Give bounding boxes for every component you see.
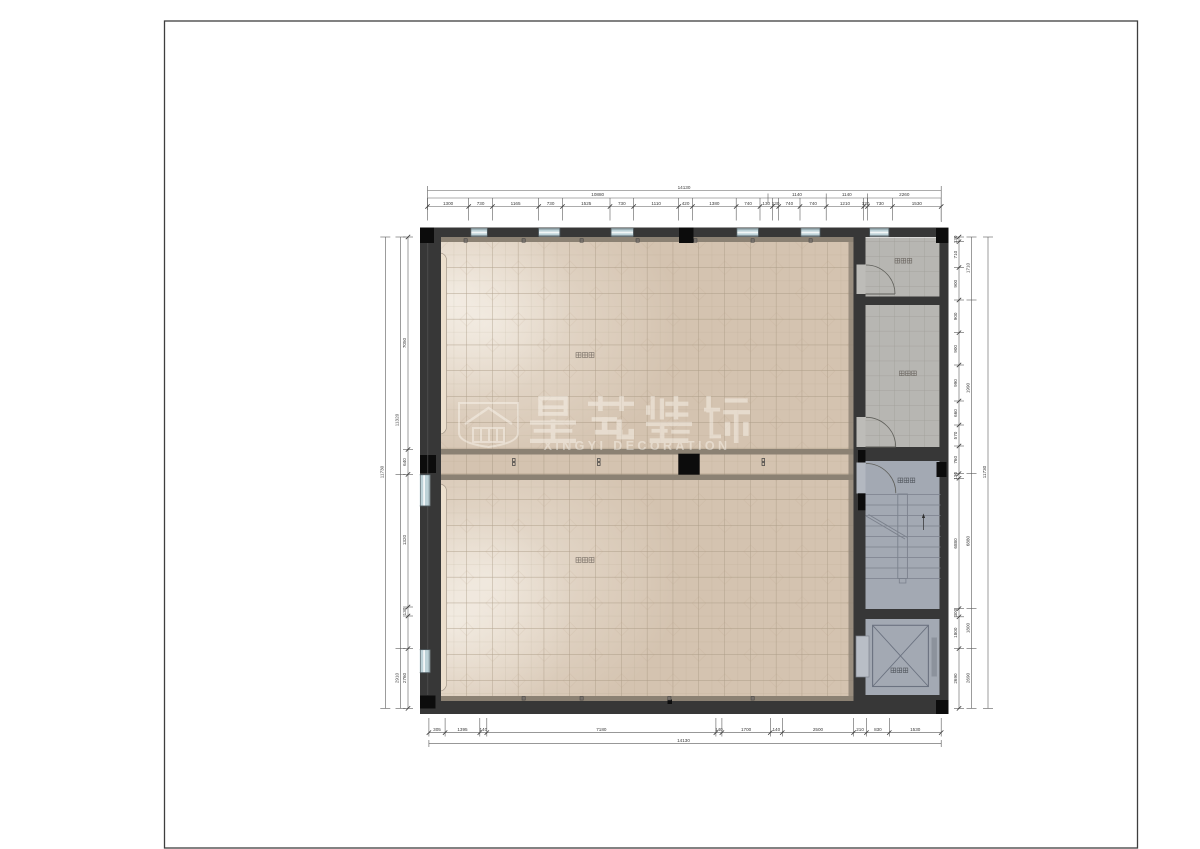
svg-text:11730: 11730: [379, 465, 384, 478]
svg-text:1140: 1140: [792, 192, 802, 197]
svg-text:830: 830: [874, 727, 882, 732]
svg-text:300: 300: [953, 608, 958, 616]
svg-text:1320: 1320: [402, 534, 407, 545]
svg-text:305: 305: [433, 727, 441, 732]
svg-text:2690: 2690: [953, 673, 958, 684]
svg-text:14130: 14130: [677, 738, 690, 743]
svg-text:1210: 1210: [840, 201, 851, 206]
svg-text:130: 130: [953, 472, 958, 480]
svg-text:XINGYI DECORATION: XINGYI DECORATION: [544, 439, 731, 453]
svg-text:1110: 1110: [651, 201, 661, 206]
svg-text:740: 740: [786, 201, 794, 206]
svg-text:1800: 1800: [953, 627, 958, 638]
svg-text:1530: 1530: [910, 727, 921, 732]
svg-text:640: 640: [402, 458, 407, 466]
svg-text:7180: 7180: [596, 727, 607, 732]
svg-text:740: 740: [809, 201, 817, 206]
svg-text:900: 900: [953, 279, 958, 287]
svg-text:900: 900: [953, 312, 958, 320]
svg-text:1990: 1990: [966, 382, 971, 393]
svg-text:730: 730: [618, 201, 626, 206]
svg-text:730: 730: [477, 201, 485, 206]
svg-text:130: 130: [402, 607, 407, 615]
svg-text:740: 740: [744, 201, 752, 206]
svg-text:6880: 6880: [966, 535, 971, 546]
svg-text:990: 990: [953, 379, 958, 387]
svg-text:710: 710: [953, 250, 958, 258]
svg-text:130: 130: [772, 201, 780, 206]
svg-text:730: 730: [547, 201, 555, 206]
svg-text:1395: 1395: [457, 727, 468, 732]
svg-text:570: 570: [953, 431, 958, 439]
svg-text:900: 900: [953, 345, 958, 353]
svg-text:1700: 1700: [741, 727, 752, 732]
svg-text:420: 420: [682, 201, 690, 206]
svg-text:1380: 1380: [709, 201, 720, 206]
svg-text:7050: 7050: [402, 337, 407, 348]
svg-text:140: 140: [772, 727, 780, 732]
svg-text:760: 760: [953, 456, 958, 464]
svg-text:11320: 11320: [395, 413, 400, 426]
svg-text:10880: 10880: [591, 192, 604, 197]
svg-text:210: 210: [856, 727, 864, 732]
svg-text:6880: 6880: [953, 538, 958, 549]
svg-text:2260: 2260: [899, 192, 910, 197]
svg-text:1525: 1525: [581, 201, 592, 206]
svg-text:1710: 1710: [966, 262, 971, 273]
svg-text:1165: 1165: [511, 201, 521, 206]
svg-text:140: 140: [715, 727, 723, 732]
svg-text:130: 130: [762, 201, 770, 206]
svg-text:130: 130: [953, 235, 958, 243]
svg-text:140: 140: [479, 727, 487, 732]
svg-text:660: 660: [953, 409, 958, 417]
svg-text:11730: 11730: [982, 465, 987, 478]
svg-text:130: 130: [862, 201, 870, 206]
svg-text:730: 730: [876, 201, 884, 206]
svg-text:2690: 2690: [966, 672, 971, 683]
svg-text:1530: 1530: [912, 201, 923, 206]
svg-text:2760: 2760: [402, 672, 407, 683]
svg-text:14130: 14130: [678, 185, 691, 190]
svg-text:1800: 1800: [966, 622, 971, 633]
svg-text:2500: 2500: [813, 727, 824, 732]
svg-text:1300: 1300: [443, 201, 454, 206]
svg-text:1140: 1140: [842, 192, 852, 197]
svg-text:2910: 2910: [395, 672, 400, 683]
